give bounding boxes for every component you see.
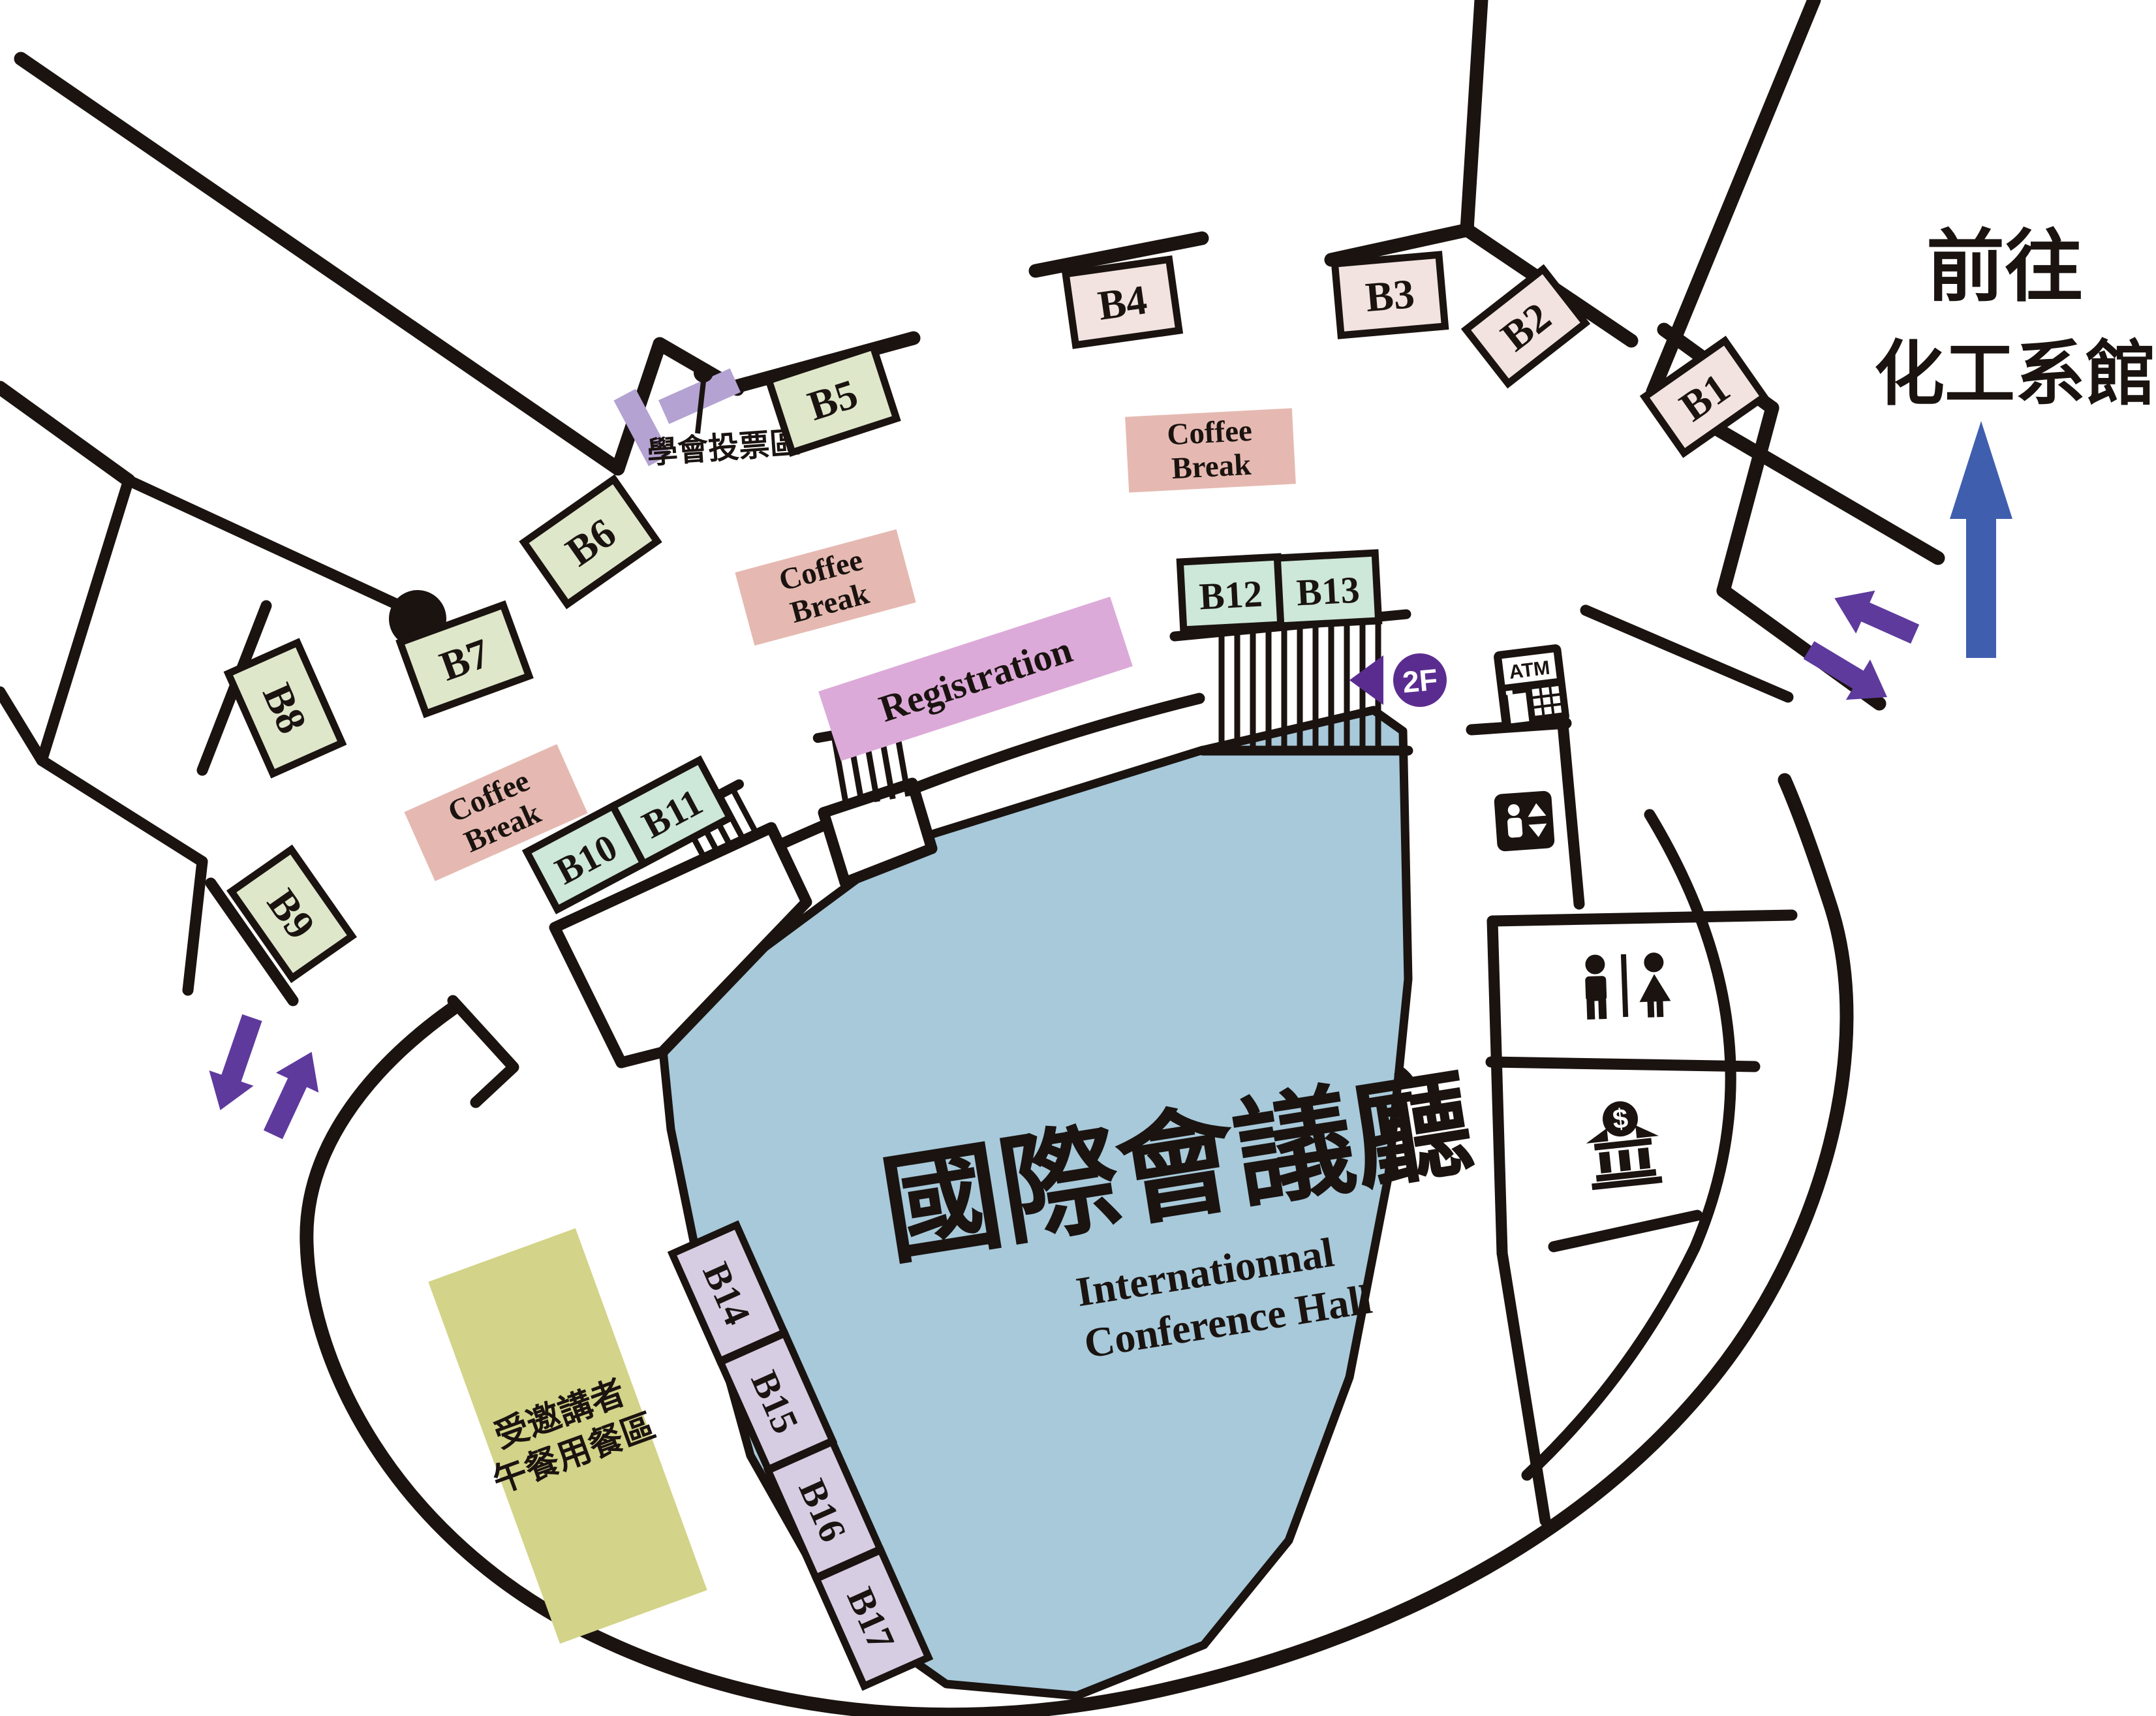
wall (1502, 1253, 1545, 1521)
wall-bank-bottom (1554, 1215, 1697, 1247)
restroom-icon (1584, 952, 1671, 1020)
floor-plan: Coffee Break Coffee Break Coffee Break R… (0, 0, 2156, 1716)
booth-label: B4 (1095, 276, 1150, 329)
atm-icon: ATM (1493, 644, 1570, 730)
wall (129, 480, 410, 610)
coffee-break-label-line2: Break (1171, 448, 1252, 486)
booth-B2: B2 (1466, 269, 1586, 383)
booth-B8: B8 (228, 643, 342, 774)
restroom-divider (1621, 954, 1628, 1017)
wall (1467, 0, 1481, 230)
booth-B6: B6 (524, 479, 657, 604)
direction-sign: 前往 化工系館 (1874, 224, 2156, 658)
entrance-arrow-icon (1825, 577, 1925, 656)
wall (1563, 725, 1579, 904)
booth-label: B3 (1364, 270, 1417, 320)
wall (1492, 921, 1502, 1253)
wall-restroom-top (1494, 915, 1792, 921)
lunch-area: 受邀講者 午餐用餐區 (422, 1226, 713, 1646)
voting-area-label: 學會投票區 (646, 426, 801, 471)
floor-2f-arrow-icon (1349, 655, 1383, 705)
woman-icon (1638, 952, 1671, 1018)
booth-B13: B13 (1277, 553, 1378, 626)
booth-B4: B4 (1066, 259, 1179, 345)
wall (188, 862, 202, 990)
booth-B12: B12 (1180, 557, 1281, 630)
booth-label: B13 (1295, 569, 1361, 614)
coffee-break-label-line1: Coffee (1166, 414, 1253, 452)
booth-B9: B9 (232, 850, 352, 978)
bank-icon: $ (1582, 1098, 1664, 1191)
floor-2f-label: 2F (1401, 663, 1439, 699)
booth-B3: B3 (1335, 255, 1445, 335)
wall-corridor-stub (453, 1001, 514, 1102)
dollar-glyph: $ (1611, 1102, 1629, 1134)
wall (42, 480, 129, 760)
entrance-arrow-icon (252, 1042, 333, 1144)
wall (42, 760, 202, 862)
registration-banner: Registration (818, 597, 1133, 761)
elevator-icon (1494, 790, 1555, 852)
wall (21, 59, 618, 469)
direction-label-line2: 化工系館 (1874, 336, 2156, 414)
wall-restroom-bottom (1491, 1062, 1755, 1067)
wall (1653, 0, 1814, 392)
booth-label: B12 (1198, 572, 1263, 618)
man-icon (1584, 954, 1607, 1020)
coffee-break-area: Coffee Break (735, 529, 916, 646)
wall (0, 388, 129, 480)
coffee-break-area: Coffee Break (1125, 408, 1296, 492)
direction-label-line1: 前往 (1926, 224, 2083, 311)
booth-B5: B5 (769, 347, 897, 452)
direction-arrow-icon (1950, 421, 2012, 658)
wall (0, 692, 42, 760)
entrance-arrow-icon (198, 1010, 275, 1117)
